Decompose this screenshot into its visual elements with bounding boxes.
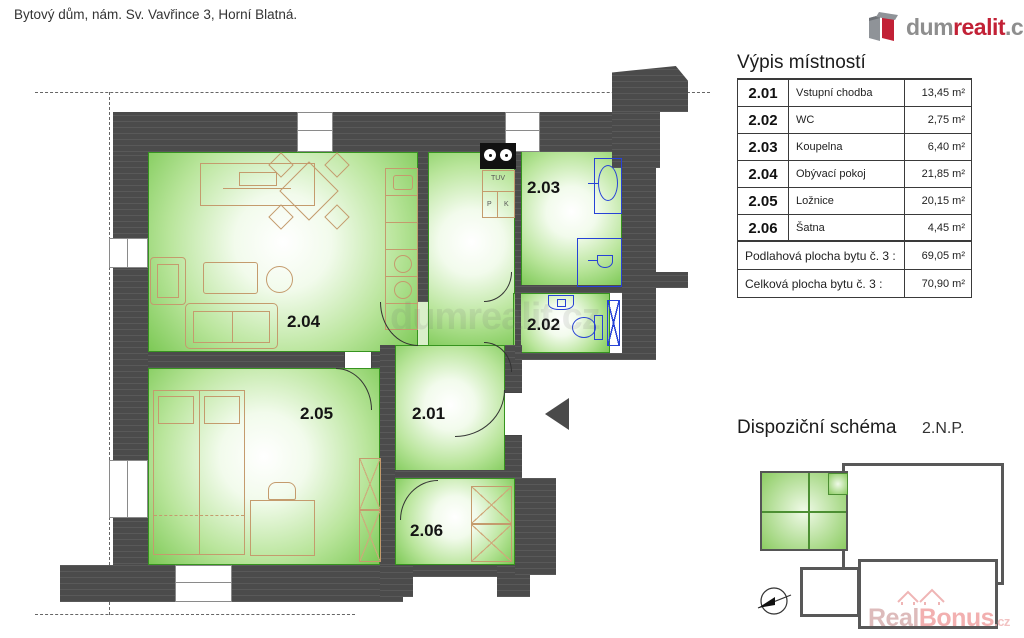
side-table-round (266, 266, 293, 293)
k-label: K (504, 201, 509, 208)
table-row: 2.05 Ložnice 20,15 m² (738, 188, 971, 215)
room-label-203: 2.03 (527, 178, 560, 198)
table-row: 2.02 WC 2,75 m² (738, 107, 971, 134)
row-area: 6,40 m² (904, 134, 971, 160)
row-id: 2.04 (738, 161, 789, 187)
realbonus-text-bonus: Bonus (919, 604, 994, 632)
sofa (185, 303, 278, 349)
wall-chimney (612, 66, 688, 112)
bathtub (594, 158, 622, 214)
wall-left (113, 152, 148, 600)
realbonus-text-cz: .cz (994, 614, 1010, 629)
row-name: Vstupní chodba (789, 80, 904, 106)
wall-hall-bedroom (380, 345, 395, 565)
summary-label: Podlahová plocha bytu č. 3 : (738, 242, 904, 269)
table-row: 2.04 Obývací pokoj 21,85 m² (738, 161, 971, 188)
room-list-table: 2.01 Vstupní chodba 13,45 m² 2.02 WC 2,7… (737, 78, 972, 242)
logo-text-dum: dum (906, 14, 953, 40)
boundary-line-left (109, 92, 110, 615)
wall-right-stub (656, 272, 688, 288)
row-area: 4,45 m² (904, 215, 971, 241)
area-summary-table: Podlahová plocha bytu č. 3 : 69,05 m² Ce… (737, 240, 972, 298)
row-area: 2,75 m² (904, 107, 971, 133)
coffee-table (203, 262, 258, 294)
summary-label: Celková plocha bytu č. 3 : (738, 270, 904, 297)
summary-area: 70,90 m² (904, 270, 971, 297)
page-title: Bytový dům, nám. Sv. Vavřince 3, Horní B… (14, 7, 297, 22)
compass-icon (754, 581, 794, 626)
wc-vent-hatch (607, 300, 620, 346)
boundary-line-bottom (35, 614, 355, 615)
wall-wc-bottom (515, 353, 622, 360)
room-label-205: 2.05 (300, 404, 333, 424)
tuv-shaft: TUV P K (482, 170, 515, 218)
mini-apartment-divider (762, 511, 846, 513)
realbonus-text-real: Real (868, 604, 919, 632)
logo-text-realit: realit (953, 14, 1005, 40)
summary-area: 69,05 m² (904, 242, 971, 269)
mini-apartment-divider (808, 473, 810, 549)
table-row: 2.03 Koupelna 6,40 m² (738, 134, 971, 161)
schema-heading: Dispoziční schéma (737, 417, 896, 439)
plan-watermark: dumrealit.cz (390, 296, 600, 339)
wall-hall-closet (395, 470, 515, 478)
row-area: 20,15 m² (904, 188, 971, 214)
mini-room-small (828, 473, 848, 495)
door-gap-bedroom (344, 352, 372, 368)
wall-right-outer (622, 152, 656, 360)
room-label-204: 2.04 (287, 312, 320, 332)
room-label-201: 2.01 (412, 404, 445, 424)
wall-kitchen (418, 152, 428, 302)
window-left-1 (109, 238, 148, 268)
room-list-heading: Výpis místností (737, 52, 866, 74)
row-name: Ložnice (789, 188, 904, 214)
window-top-1 (297, 112, 333, 152)
row-name: Šatna (789, 215, 904, 241)
summary-row: Podlahová plocha bytu č. 3 : 69,05 m² (738, 242, 971, 270)
schema-floor-label: 2.N.P. (922, 420, 964, 438)
armchair (150, 257, 186, 305)
stove-icon (480, 143, 516, 169)
boundary-line-top (35, 92, 710, 93)
table-row: 2.01 Vstupní chodba 13,45 m² (738, 80, 971, 107)
summary-row: Celková plocha bytu č. 3 : 70,90 m² (738, 270, 971, 297)
row-id: 2.02 (738, 107, 789, 133)
washbasin-bath (577, 238, 622, 287)
bed (153, 390, 245, 555)
wall-pillar-a (380, 565, 413, 597)
logo-text-cz: .cz (1005, 14, 1024, 40)
tuv-label: TUV (491, 175, 505, 182)
row-name: Koupelna (789, 134, 904, 160)
row-id: 2.01 (738, 80, 789, 106)
door-gap-entrance (505, 392, 522, 436)
desk (250, 500, 315, 556)
wardrobe-bedroom-2 (359, 510, 381, 562)
room-label-206: 2.06 (410, 521, 443, 541)
mini-block-stairs (800, 567, 860, 617)
row-id: 2.03 (738, 134, 789, 160)
row-id: 2.06 (738, 215, 789, 241)
dumrealit-logo: dumrealit.cz (866, 7, 1024, 48)
dumrealit-logo-icon (866, 7, 902, 48)
row-name: Obývací pokoj (789, 161, 904, 187)
wardrobe-closet-1 (471, 486, 512, 524)
floorplan-page: Bytový dům, nám. Sv. Vavřince 3, Horní B… (0, 0, 1024, 638)
wardrobe-bedroom-1 (359, 458, 381, 510)
wardrobe-closet-2 (471, 524, 512, 562)
row-id: 2.05 (738, 188, 789, 214)
row-area: 13,45 m² (904, 80, 971, 106)
row-name: WC (789, 107, 904, 133)
window-bottom (175, 565, 232, 602)
desk-chair (268, 482, 296, 500)
wall-stairwell (515, 478, 556, 575)
table-row: 2.06 Šatna 4,45 m² (738, 215, 971, 241)
entrance-arrow-icon (545, 398, 569, 430)
p-label: P (487, 201, 492, 208)
wall-top (113, 112, 660, 152)
window-left-2 (109, 460, 148, 518)
row-area: 21,85 m² (904, 161, 971, 187)
